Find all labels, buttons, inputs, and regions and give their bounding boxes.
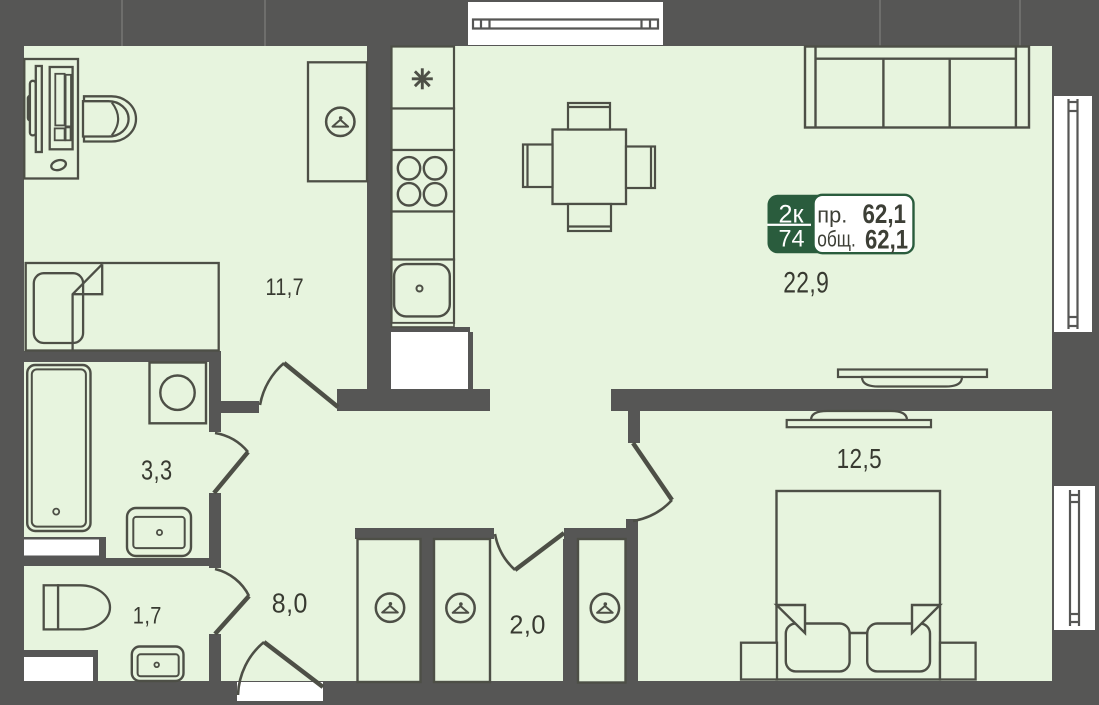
svg-text:8,0: 8,0	[272, 588, 308, 619]
svg-text:1,7: 1,7	[133, 603, 162, 630]
svg-text:74: 74	[779, 225, 805, 252]
svg-text:2,0: 2,0	[509, 610, 546, 640]
svg-text:62,1: 62,1	[865, 225, 908, 255]
svg-text:22,9: 22,9	[783, 267, 829, 300]
svg-text:2к: 2к	[779, 200, 805, 228]
svg-text:общ.: общ.	[817, 226, 856, 251]
svg-text:11,7: 11,7	[266, 274, 305, 301]
svg-text:пр.: пр.	[817, 202, 847, 227]
svg-text:12,5: 12,5	[837, 443, 883, 474]
svg-text:3,3: 3,3	[141, 455, 173, 486]
